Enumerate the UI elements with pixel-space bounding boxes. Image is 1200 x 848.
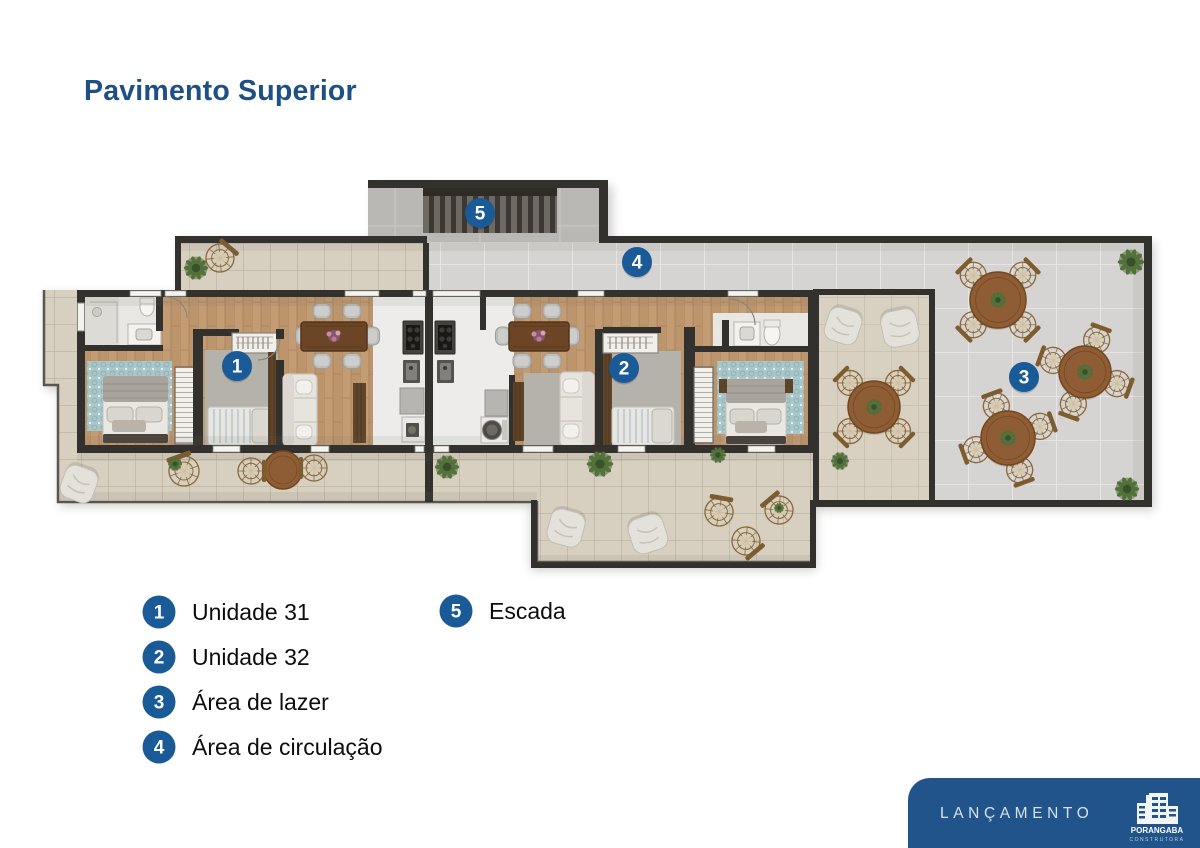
svg-text:5: 5 bbox=[451, 602, 462, 623]
svg-text:3: 3 bbox=[1019, 368, 1030, 389]
svg-text:PORANGABA: PORANGABA bbox=[1131, 826, 1184, 835]
svg-text:1: 1 bbox=[232, 357, 243, 378]
svg-text:3: 3 bbox=[154, 693, 165, 714]
svg-text:Escada: Escada bbox=[489, 598, 566, 624]
svg-text:Unidade 31: Unidade 31 bbox=[192, 599, 310, 625]
svg-text:Unidade 32: Unidade 32 bbox=[192, 644, 310, 670]
svg-text:4: 4 bbox=[632, 253, 643, 274]
svg-text:2: 2 bbox=[619, 359, 630, 380]
svg-text:Área de lazer: Área de lazer bbox=[192, 689, 329, 715]
svg-text:CONSTRUTORA: CONSTRUTORA bbox=[1129, 837, 1184, 843]
svg-text:5: 5 bbox=[475, 204, 486, 225]
svg-text:Área de circulação: Área de circulação bbox=[192, 734, 383, 760]
svg-text:4: 4 bbox=[154, 738, 165, 759]
svg-text:2: 2 bbox=[154, 648, 165, 669]
svg-text:LANÇAMENTO: LANÇAMENTO bbox=[940, 805, 1093, 822]
svg-text:Pavimento Superior: Pavimento Superior bbox=[84, 75, 357, 107]
svg-text:1: 1 bbox=[154, 603, 165, 624]
